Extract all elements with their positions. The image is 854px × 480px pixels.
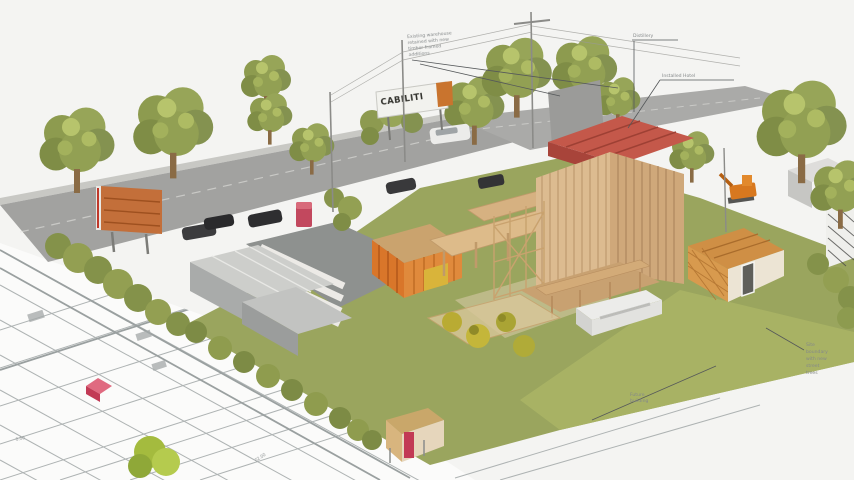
- annotation-line: Future: [630, 392, 645, 398]
- red-booth: [296, 202, 312, 227]
- annotation-label: Installed Hotel: [662, 73, 695, 79]
- annotation-line: building: [630, 398, 648, 404]
- site-rendering: 0.00 02.00: [0, 0, 854, 480]
- axonometric-scene: 0.00 02.00: [0, 0, 854, 480]
- annotation-label: Distillery: [633, 33, 654, 39]
- annotation-line: trees: [806, 370, 818, 376]
- annotation-line: boundary: [806, 349, 828, 355]
- annotation-line: with new: [806, 356, 827, 362]
- annotation-line: Site: [806, 342, 815, 348]
- annotation-line: street: [806, 363, 820, 369]
